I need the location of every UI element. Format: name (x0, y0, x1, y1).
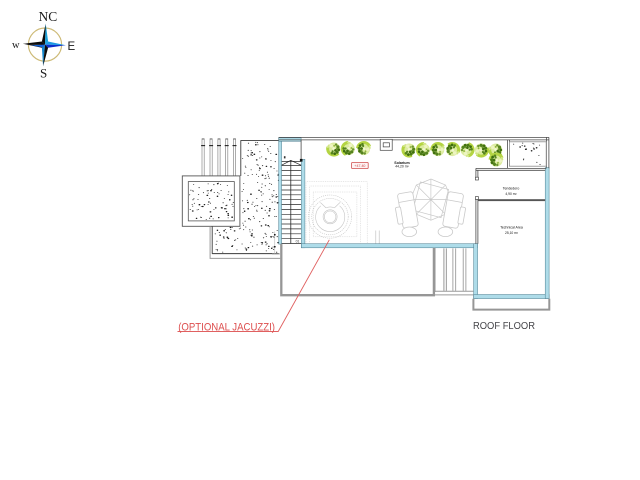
svg-text:ROOF FLOOR: ROOF FLOOR (473, 321, 535, 332)
svg-text:NC: NC (39, 9, 58, 24)
svg-text:4,90 m²: 4,90 m² (505, 192, 517, 196)
svg-text:E: E (68, 41, 76, 53)
svg-text:w: w (12, 40, 20, 51)
svg-text:Technical Area: Technical Area (500, 226, 523, 230)
svg-text:Tendedero: Tendedero (503, 187, 520, 191)
svg-text:(OPTIONAL JACUZZI): (OPTIONAL JACUZZI) (178, 322, 275, 334)
svg-text:44,20 m²: 44,20 m² (395, 165, 409, 169)
svg-text:01: 01 (296, 239, 300, 243)
svg-text:25,10 m²: 25,10 m² (505, 231, 519, 235)
svg-text:S: S (40, 66, 47, 81)
svg-text:+47.40: +47.40 (354, 164, 365, 168)
